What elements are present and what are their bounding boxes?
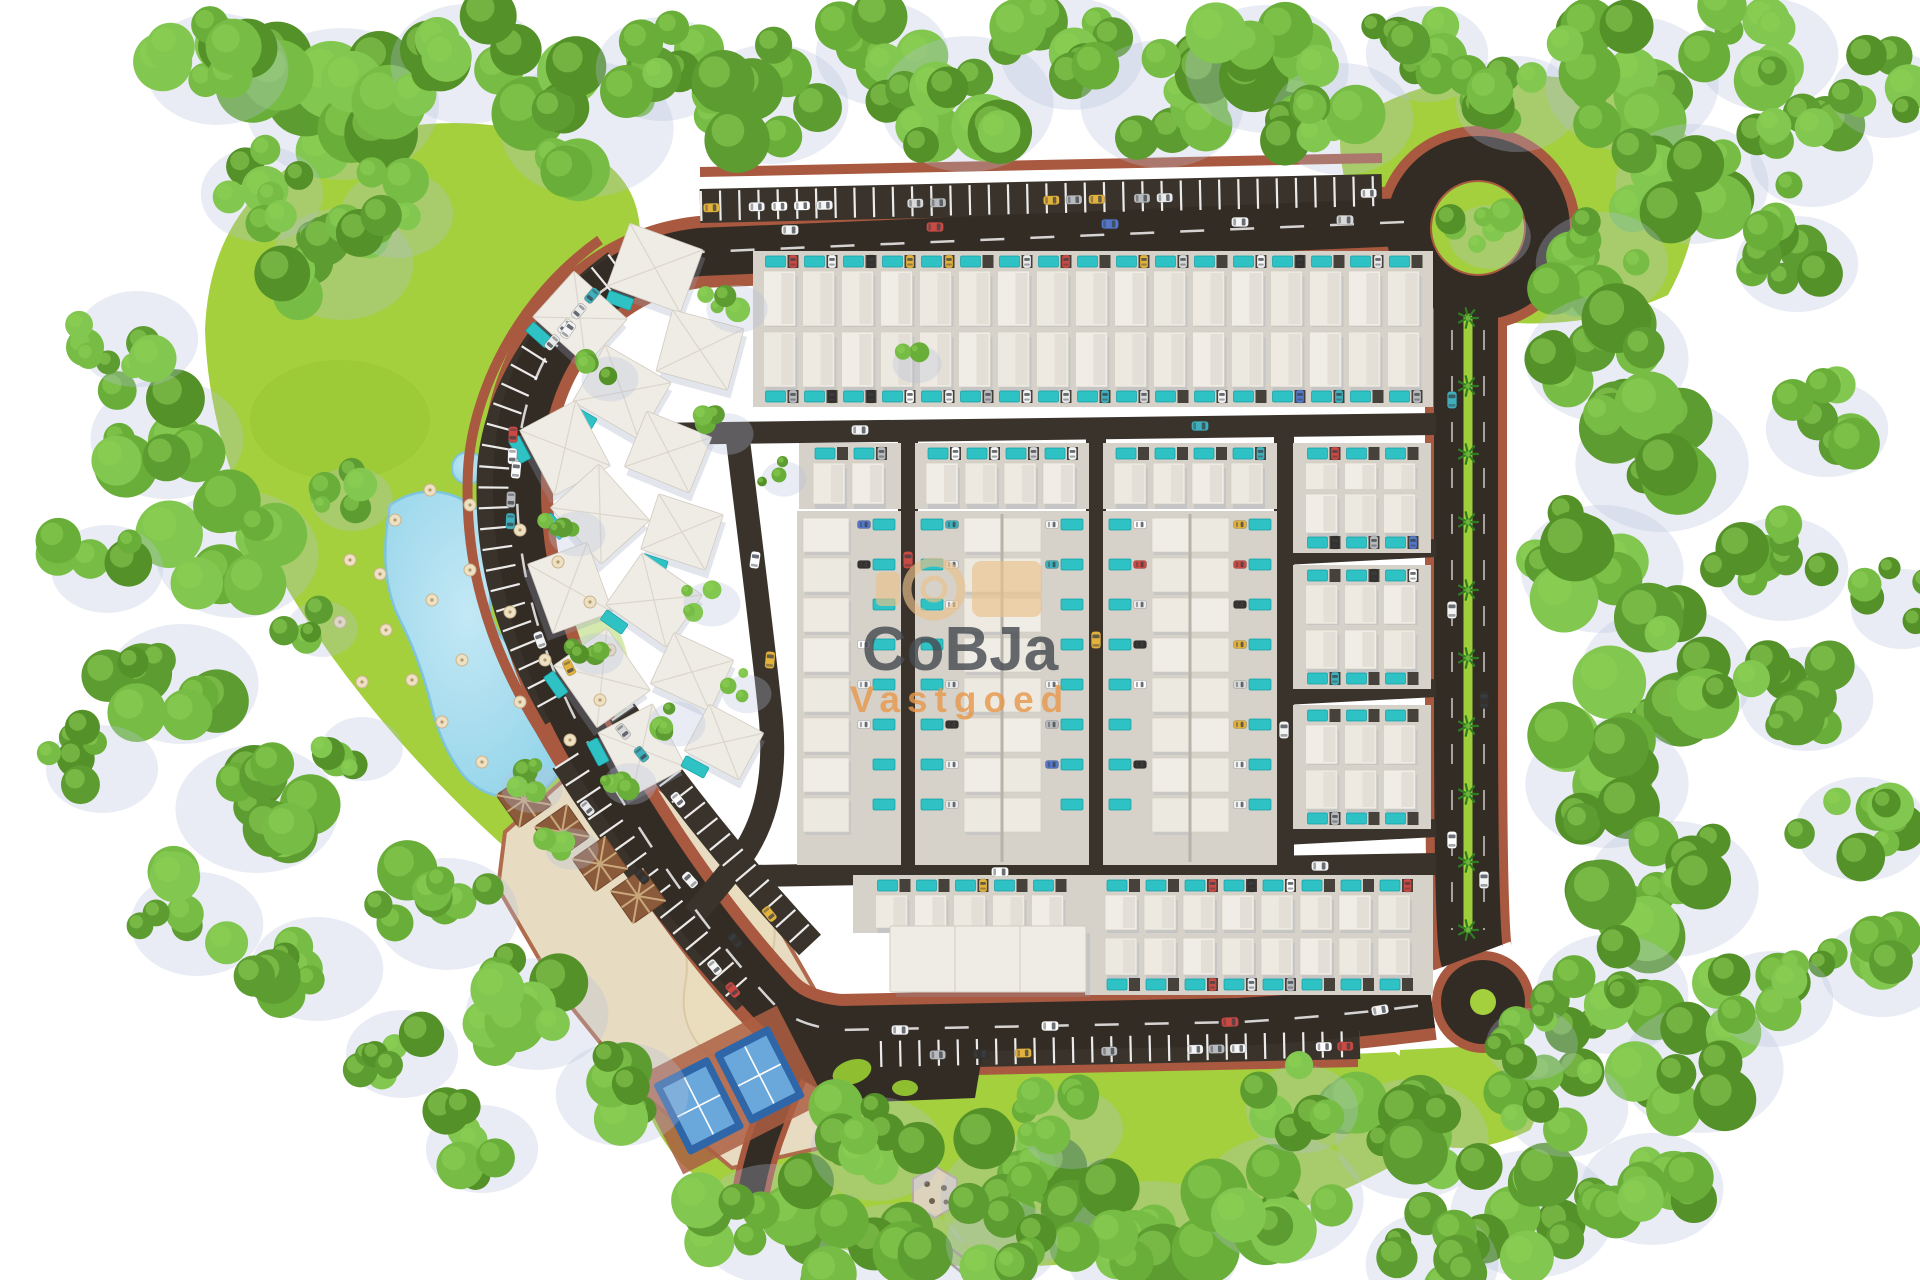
parasol xyxy=(456,654,468,666)
parasol xyxy=(406,674,418,686)
car xyxy=(1062,390,1070,403)
car xyxy=(858,721,871,729)
parasol xyxy=(436,716,448,728)
car xyxy=(930,1050,946,1059)
street-a xyxy=(648,424,1436,434)
car xyxy=(927,222,944,232)
east-street-2 xyxy=(1284,688,1436,696)
car xyxy=(1046,721,1059,729)
car xyxy=(858,521,871,529)
parasol xyxy=(424,484,436,496)
car xyxy=(782,225,799,235)
parasol xyxy=(380,624,392,636)
car xyxy=(1335,390,1343,403)
car xyxy=(1192,421,1209,431)
car xyxy=(972,1049,988,1058)
townhouse-row xyxy=(1085,875,1433,935)
car xyxy=(1287,978,1295,991)
car xyxy=(1046,521,1059,529)
car xyxy=(1102,219,1119,229)
car xyxy=(945,390,953,403)
car xyxy=(984,390,992,403)
car xyxy=(1248,879,1256,892)
car xyxy=(1101,1047,1117,1056)
car xyxy=(906,255,914,268)
car xyxy=(1287,879,1295,892)
car xyxy=(1134,641,1147,649)
car xyxy=(789,390,797,403)
car xyxy=(1089,195,1105,204)
townhouse-row xyxy=(1293,765,1431,829)
townhouse-row xyxy=(1085,933,1433,995)
car xyxy=(1140,390,1148,403)
car xyxy=(946,801,959,809)
car xyxy=(991,447,999,460)
watermark-brand-text: CoBJa xyxy=(862,615,1059,684)
car xyxy=(1046,761,1059,769)
townhouse-row xyxy=(915,443,1089,509)
car xyxy=(1296,255,1304,268)
car xyxy=(1279,722,1289,739)
car xyxy=(1234,681,1247,689)
car xyxy=(852,425,869,435)
car xyxy=(1312,861,1329,871)
car xyxy=(1187,1045,1203,1054)
car xyxy=(508,426,517,442)
car xyxy=(946,721,959,729)
east-street-3 xyxy=(1284,828,1436,836)
car xyxy=(1134,194,1150,203)
clubhouse xyxy=(890,926,1090,997)
car xyxy=(1101,390,1109,403)
car xyxy=(749,202,765,211)
watermark: CoBJa Vastgoed xyxy=(850,561,1071,720)
car xyxy=(1404,879,1412,892)
parasol xyxy=(539,654,551,666)
car xyxy=(1030,447,1038,460)
car xyxy=(1179,255,1187,268)
car xyxy=(817,201,833,210)
car xyxy=(506,513,515,529)
car xyxy=(1218,390,1226,403)
south-roundabout-island xyxy=(1470,989,1496,1015)
car xyxy=(1023,390,1031,403)
car xyxy=(1023,255,1031,268)
car xyxy=(1374,255,1382,268)
car xyxy=(1257,447,1265,460)
parasol xyxy=(464,499,476,511)
parasol xyxy=(476,756,488,768)
car xyxy=(1316,1042,1332,1051)
car xyxy=(511,461,522,479)
car xyxy=(1337,1042,1353,1051)
car xyxy=(1069,447,1077,460)
parasol xyxy=(374,568,386,580)
car xyxy=(1447,392,1457,409)
tree-cluster xyxy=(648,702,705,747)
car xyxy=(1209,978,1217,991)
car xyxy=(749,551,761,569)
parasol xyxy=(356,676,368,688)
car xyxy=(1234,721,1247,729)
car xyxy=(1234,521,1247,529)
car xyxy=(771,202,787,211)
car xyxy=(945,255,953,268)
car xyxy=(1066,195,1082,204)
car xyxy=(506,491,515,507)
car xyxy=(1234,601,1247,609)
car xyxy=(1234,761,1247,769)
parasol xyxy=(514,696,526,708)
car xyxy=(867,255,875,268)
car xyxy=(930,198,946,207)
junction-island xyxy=(892,1080,918,1096)
car xyxy=(1209,879,1217,892)
car xyxy=(1234,801,1247,809)
car xyxy=(1479,872,1489,889)
car xyxy=(1140,255,1148,268)
car xyxy=(1447,832,1457,849)
car xyxy=(828,255,836,268)
lawn-patch xyxy=(250,360,430,480)
car xyxy=(1221,1017,1238,1027)
car xyxy=(1134,681,1147,689)
car xyxy=(1208,1044,1224,1053)
townhouse-row xyxy=(1103,443,1277,509)
car xyxy=(1230,1044,1246,1053)
car xyxy=(952,447,960,460)
car xyxy=(1409,536,1417,549)
car xyxy=(867,390,875,403)
car xyxy=(789,255,797,268)
car xyxy=(1447,602,1457,619)
parasol xyxy=(552,556,564,568)
car xyxy=(1234,641,1247,649)
parasol xyxy=(344,554,356,566)
parasol xyxy=(514,524,526,536)
car xyxy=(828,390,836,403)
car xyxy=(1134,561,1147,569)
parasol xyxy=(464,564,476,576)
car xyxy=(1134,601,1147,609)
car xyxy=(1331,672,1339,685)
car xyxy=(892,1025,909,1035)
parasol xyxy=(389,514,401,526)
car xyxy=(1232,217,1249,227)
car xyxy=(979,879,987,892)
car xyxy=(1337,215,1354,225)
car xyxy=(1248,978,1256,991)
car xyxy=(1043,196,1059,205)
watermark-subtitle-text: Vastgoed xyxy=(850,679,1071,720)
parasol xyxy=(504,606,516,618)
townhouse-strip xyxy=(1103,511,1277,865)
car xyxy=(1370,536,1378,549)
car xyxy=(765,651,776,669)
car xyxy=(1157,193,1173,202)
car xyxy=(1331,447,1339,460)
car xyxy=(1234,561,1247,569)
car xyxy=(1257,255,1265,268)
parasol xyxy=(584,596,596,608)
townhouse-row xyxy=(853,875,1089,933)
car xyxy=(794,201,810,210)
townhouse-row xyxy=(1293,625,1431,689)
car xyxy=(1015,1048,1031,1057)
parasol xyxy=(426,594,438,606)
parasol xyxy=(564,734,576,746)
car xyxy=(1370,569,1378,582)
car xyxy=(907,199,923,208)
townhouse-row xyxy=(753,327,1433,407)
parasol xyxy=(594,694,606,706)
car xyxy=(1479,692,1489,709)
car xyxy=(878,447,886,460)
car xyxy=(906,390,914,403)
townhouse-row xyxy=(753,251,1433,331)
car xyxy=(992,867,1009,877)
site-plan-rendering: CoBJa Vastgoed xyxy=(0,0,1920,1280)
car xyxy=(1134,761,1147,769)
car xyxy=(946,761,959,769)
car xyxy=(1331,812,1339,825)
car xyxy=(1134,521,1147,529)
car xyxy=(903,552,913,569)
car xyxy=(703,203,719,212)
car xyxy=(1331,536,1339,549)
car xyxy=(1296,390,1304,403)
car xyxy=(858,561,871,569)
car xyxy=(946,521,959,529)
car xyxy=(1062,255,1070,268)
car xyxy=(1042,1021,1059,1031)
townhouse-row xyxy=(1293,705,1431,769)
car xyxy=(1091,632,1101,649)
car xyxy=(1413,390,1421,403)
car xyxy=(1409,569,1417,582)
car xyxy=(1046,561,1059,569)
car xyxy=(1361,189,1377,198)
